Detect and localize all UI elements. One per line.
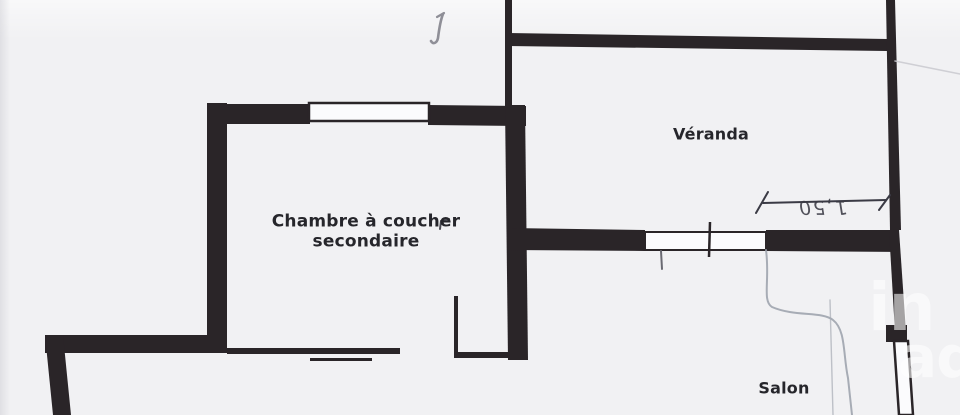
room-label-chambre-line1: Chambre à coucher — [272, 212, 461, 232]
walls-thin-hall — [227, 296, 518, 361]
room-label-salon: Salon — [758, 378, 809, 397]
window-veranda-bottom — [645, 222, 766, 257]
room-label-chambre: Chambre à coucher secondaire — [272, 212, 461, 253]
window-salon-right — [894, 341, 913, 415]
room-label-veranda: Véranda — [673, 124, 749, 143]
handwritten-dimension: 1,50 — [795, 196, 849, 218]
scanned-floor-plan: Chambre à coucher secondaire Véranda Sal… — [0, 0, 960, 415]
window-chambre-top — [309, 103, 429, 121]
room-label-chambre-line2: secondaire — [272, 232, 461, 252]
walls-bottom-left — [45, 335, 227, 415]
